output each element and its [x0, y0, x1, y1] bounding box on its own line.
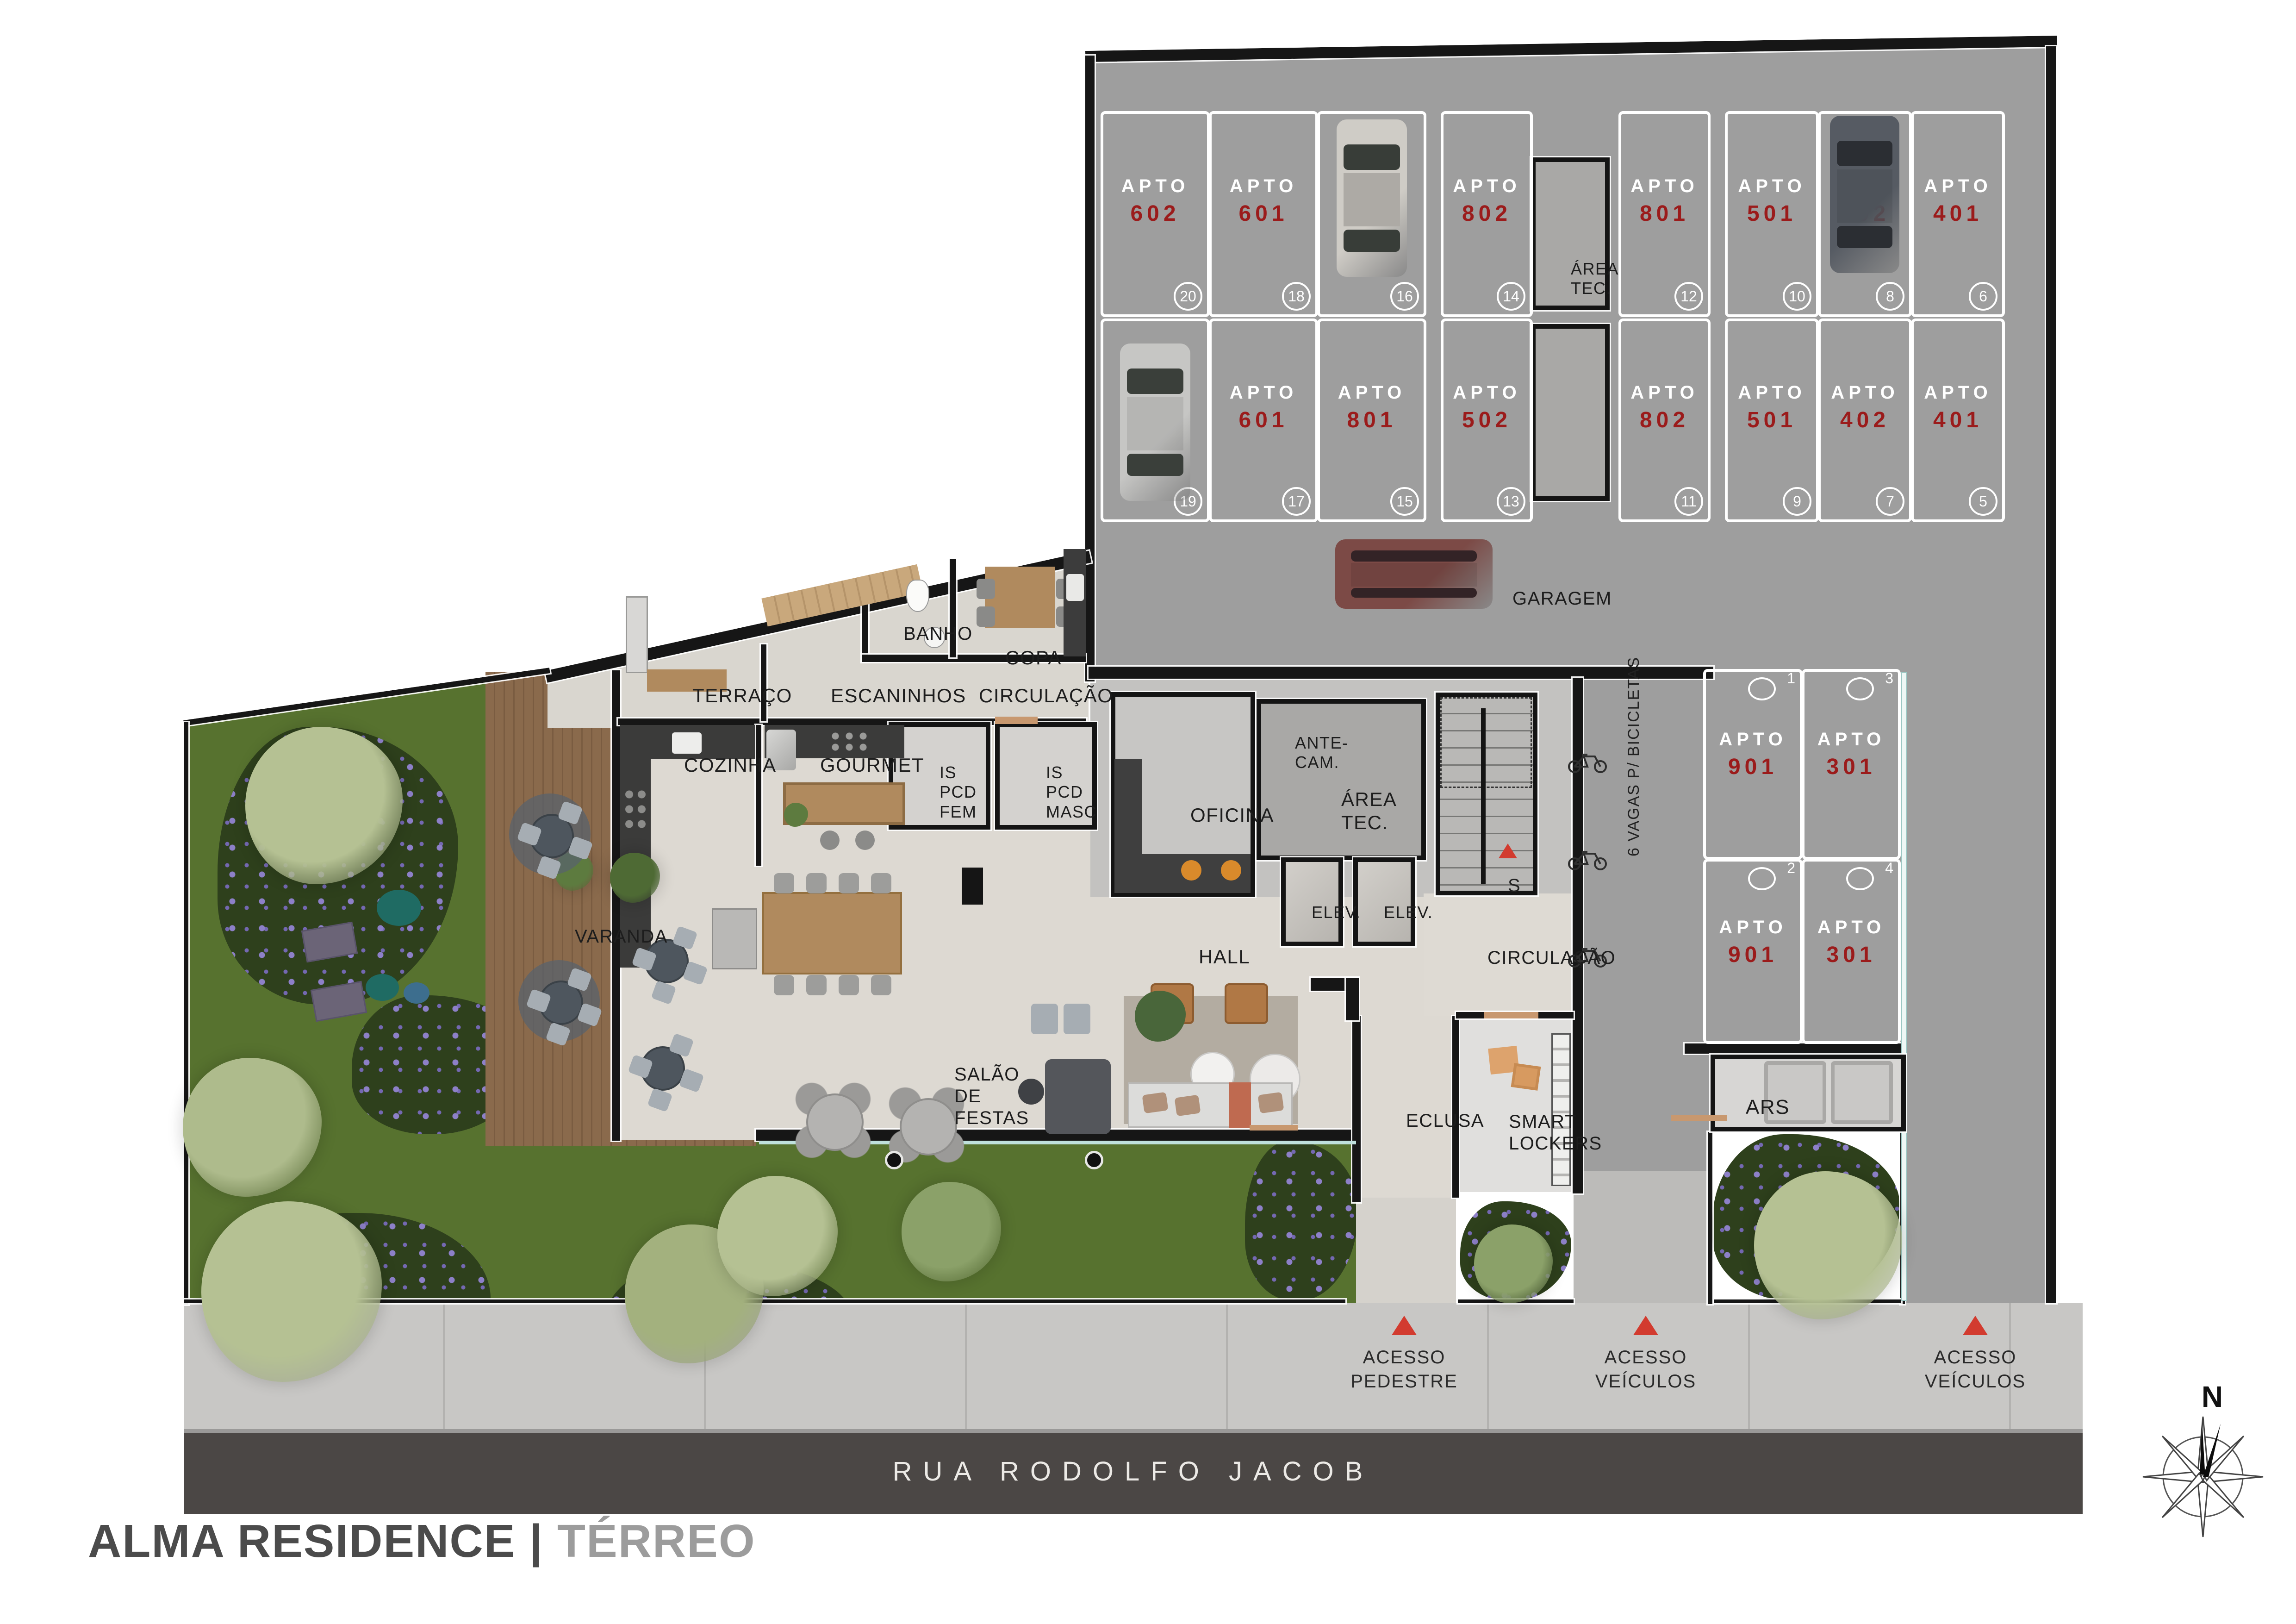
access-arrow-icon [1392, 1316, 1417, 1335]
area-tec-garage-room [1531, 324, 1610, 501]
dining-table [762, 892, 902, 974]
ars-sofa [1831, 1061, 1893, 1124]
copa-sink [1066, 574, 1084, 601]
dining-chair [806, 873, 827, 893]
wall [1352, 1016, 1361, 1202]
parking-apto-word: APTO [1831, 382, 1898, 403]
fridge [712, 908, 757, 969]
sofa-cushion [1142, 1092, 1168, 1114]
copa-counter [1064, 549, 1086, 656]
dining-chair [839, 873, 859, 893]
parking-apto-word: APTO [1719, 917, 1786, 938]
dining-chair [871, 873, 891, 893]
access-arrow-icon [1963, 1316, 1988, 1335]
parking-spot-number: 3 [1885, 670, 1893, 687]
parking-spot-number: 18 [1282, 282, 1311, 311]
dining-chair [806, 975, 827, 995]
sidewalk [184, 1303, 2083, 1433]
hall-armchair [1225, 983, 1268, 1024]
oficina-chair [1221, 860, 1241, 881]
elevator-shaft [1281, 857, 1343, 946]
oficina-chair [1181, 860, 1201, 881]
sofa-cushion [1174, 1095, 1201, 1117]
access-arrow-icon [1633, 1316, 1658, 1335]
parking-spot-number: 16 [1390, 282, 1419, 311]
floor-plan: RUA RODOLFO JACOBSAPTO60220APTO60219APTO… [0, 0, 2296, 1624]
title-separator: | [529, 1515, 543, 1567]
parking-apto-word: APTO [1121, 176, 1189, 197]
driveway-middle [1574, 1171, 1712, 1303]
floor-walkway [1356, 1198, 1456, 1303]
path-light [885, 1151, 903, 1169]
floor-eclusa [1356, 1016, 1456, 1198]
garden-pouf [366, 974, 399, 1001]
elevator-shaft [1353, 857, 1415, 946]
project-name: ALMA RESIDENCE [88, 1515, 516, 1567]
locker-bank [1551, 1033, 1571, 1186]
dining-chair [774, 873, 794, 893]
parking-spot-number: 5 [1969, 487, 1997, 516]
gourmet-stool [855, 831, 875, 850]
bicycle-icon [1568, 847, 1607, 871]
parking-apto-word: APTO [1719, 729, 1786, 750]
compass-rose-icon [2134, 1412, 2272, 1542]
parking-spot-number: 1 [1787, 670, 1795, 687]
parking-spot-number: 2 [1787, 860, 1795, 877]
access-label: ACESSO PEDESTRE [1312, 1345, 1497, 1393]
sofa-cushion [1257, 1092, 1284, 1114]
parking-spot: APTO60220 [1101, 111, 1210, 317]
parking-spot-number: 4 [1885, 860, 1893, 877]
hall-sofa-accent [1229, 1082, 1251, 1128]
floor-plan-canvas: RUA RODOLFO JACOBSAPTO60220APTO60219APTO… [0, 0, 2296, 1624]
wall [2046, 46, 2056, 1303]
wall [612, 670, 620, 1141]
parking-apto-word: APTO [1817, 917, 1885, 938]
salao-round-table [806, 1093, 864, 1151]
wall [1089, 667, 1713, 679]
bicycle-icon [1568, 750, 1607, 774]
stairs-divider [1481, 708, 1486, 884]
parking-apto-word: APTO [1817, 729, 1885, 750]
cozinha-sink [672, 732, 702, 754]
service-box [962, 868, 983, 905]
parking-apto-number: 301 [1826, 942, 1876, 968]
parking-apto-number: 901 [1728, 942, 1778, 968]
parking-spot: APTO80112 [1618, 111, 1711, 317]
parking-apto-word: APTO [1738, 382, 1805, 403]
dining-chair [839, 975, 859, 995]
parking-spot: APTO80211 [1618, 319, 1711, 522]
garden-pouf [377, 890, 421, 926]
floor-name: TÉRREO [557, 1515, 756, 1567]
door-sill [1250, 1125, 1298, 1131]
parking-apto-number: 802 [1640, 407, 1689, 433]
parking-apto-number: 801 [1347, 407, 1396, 433]
parking-spot: APTO9012 [1703, 859, 1803, 1044]
door-sill [1671, 1115, 1727, 1121]
parking-spot-number: 8 [1876, 282, 1904, 311]
parking-apto-number: 801 [1640, 201, 1689, 226]
street-name: RUA RODOLFO JACOB [184, 1456, 2083, 1493]
parking-apto-word: APTO [1453, 176, 1520, 197]
tree [1754, 1171, 1902, 1319]
parking-apto-number: 602 [1130, 201, 1180, 226]
wall [761, 644, 766, 721]
parking-spot: APTO5019 [1725, 319, 1819, 522]
gourmet-cooktop [828, 731, 870, 753]
parking-apto-number: 301 [1826, 754, 1876, 780]
car-silver-sedan [1120, 344, 1190, 501]
parking-spot-number: 7 [1876, 487, 1904, 516]
car-white-suv [1337, 119, 1407, 277]
parking-spot: APTO50110 [1725, 111, 1819, 317]
parking-spot-number: 6 [1969, 282, 1997, 311]
parking-spot: APTO4016 [1911, 111, 2005, 317]
car-maroon-sedan [1335, 539, 1493, 609]
door-sill [1484, 1012, 1538, 1018]
wall [1452, 1016, 1459, 1198]
door-sill [995, 717, 1038, 724]
parking-spot: APTO4015 [1911, 319, 2005, 522]
copa-chair [977, 579, 995, 599]
parcel-box [1511, 1063, 1541, 1091]
stairs-up-arrow [1499, 843, 1517, 858]
copa-table [985, 567, 1055, 628]
parking-apto-word: APTO [1230, 382, 1297, 403]
wall [184, 722, 188, 1305]
parking-spot: APTO4027 [1818, 319, 1912, 522]
parking-spot-number: 14 [1497, 282, 1525, 311]
wall [1708, 1132, 1712, 1304]
stairs-upper-flight [1440, 697, 1532, 788]
parking-spot: APTO60118 [1209, 111, 1318, 317]
compass-north-label: N [2198, 1380, 2226, 1414]
parking-apto-word: APTO [1230, 176, 1297, 197]
lounge-chair [1064, 1004, 1090, 1034]
parking-apto-number: 601 [1238, 407, 1288, 433]
cooktop [623, 787, 648, 831]
wall [1085, 56, 1095, 681]
parking-apto-word: APTO [1738, 176, 1805, 197]
gourmet-stool [820, 831, 840, 850]
wall [1685, 1043, 1906, 1054]
parking-apto-word: APTO [1924, 382, 1991, 403]
area-tec-room [1257, 699, 1426, 860]
salao-sofa-ottoman [1018, 1079, 1044, 1105]
parking-apto-number: 901 [1728, 754, 1778, 780]
parking-apto-word: APTO [1630, 382, 1698, 403]
parking-apto-word: APTO [1924, 176, 1991, 197]
parking-spot: APTO80115 [1317, 319, 1426, 522]
parking-spot-number: 13 [1497, 487, 1525, 516]
parking-apto-number: 501 [1747, 407, 1797, 433]
parking-spot: APTO60117 [1209, 319, 1318, 522]
varanda-deck [485, 672, 618, 1146]
parking-spot-number: 9 [1783, 487, 1811, 516]
lounge-chair [1031, 1004, 1058, 1034]
parking-spot: APTO80214 [1441, 111, 1533, 317]
parking-apto-number: 802 [1462, 201, 1512, 226]
parking-spot-number: 12 [1674, 282, 1703, 311]
parking-apto-word: APTO [1338, 382, 1406, 403]
wall [756, 725, 761, 866]
parking-spot-number: 10 [1783, 282, 1811, 311]
access-label: ACESSO VEÍCULOS [1553, 1345, 1738, 1393]
garden-pouf [404, 982, 429, 1004]
terraco-counter [626, 596, 648, 673]
parking-apto-number: 402 [1840, 407, 1890, 433]
parking-apto-number: 401 [1933, 201, 1983, 226]
path-light [1085, 1151, 1103, 1169]
car-dark-sedan [1830, 116, 1899, 273]
parking-apto-number: 501 [1747, 201, 1797, 226]
parking-spot: APTO3013 [1802, 669, 1901, 860]
parking-apto-number: 502 [1462, 407, 1512, 433]
plan-title: ALMA RESIDENCE | TÉRREO [88, 1515, 756, 1568]
parking-apto-word: APTO [1453, 382, 1520, 403]
salao-round-table [900, 1098, 957, 1156]
wall [1346, 978, 1359, 1020]
parking-spot-number: 17 [1282, 487, 1311, 516]
parking-spot: APTO9011 [1703, 669, 1803, 860]
parking-apto-word: APTO [1630, 176, 1698, 197]
parking-apto-number: 401 [1933, 407, 1983, 433]
parking-spot: APTO50213 [1441, 319, 1533, 522]
parking-apto-number: 601 [1238, 201, 1288, 226]
dining-chair [871, 975, 891, 995]
parking-spot-number: 20 [1174, 282, 1202, 311]
toilet [906, 580, 929, 612]
parking-spot-number: 15 [1390, 487, 1419, 516]
salao-sofa [1045, 1059, 1111, 1134]
glass-wall [1901, 672, 1907, 1301]
dining-chair [774, 975, 794, 995]
access-label: ACESSO VEÍCULOS [1883, 1345, 2068, 1393]
copa-chair [977, 606, 995, 627]
parking-spot: APTO3014 [1802, 859, 1901, 1044]
parking-spot-number: 11 [1674, 487, 1703, 516]
compass-rose: N [2129, 1380, 2277, 1546]
